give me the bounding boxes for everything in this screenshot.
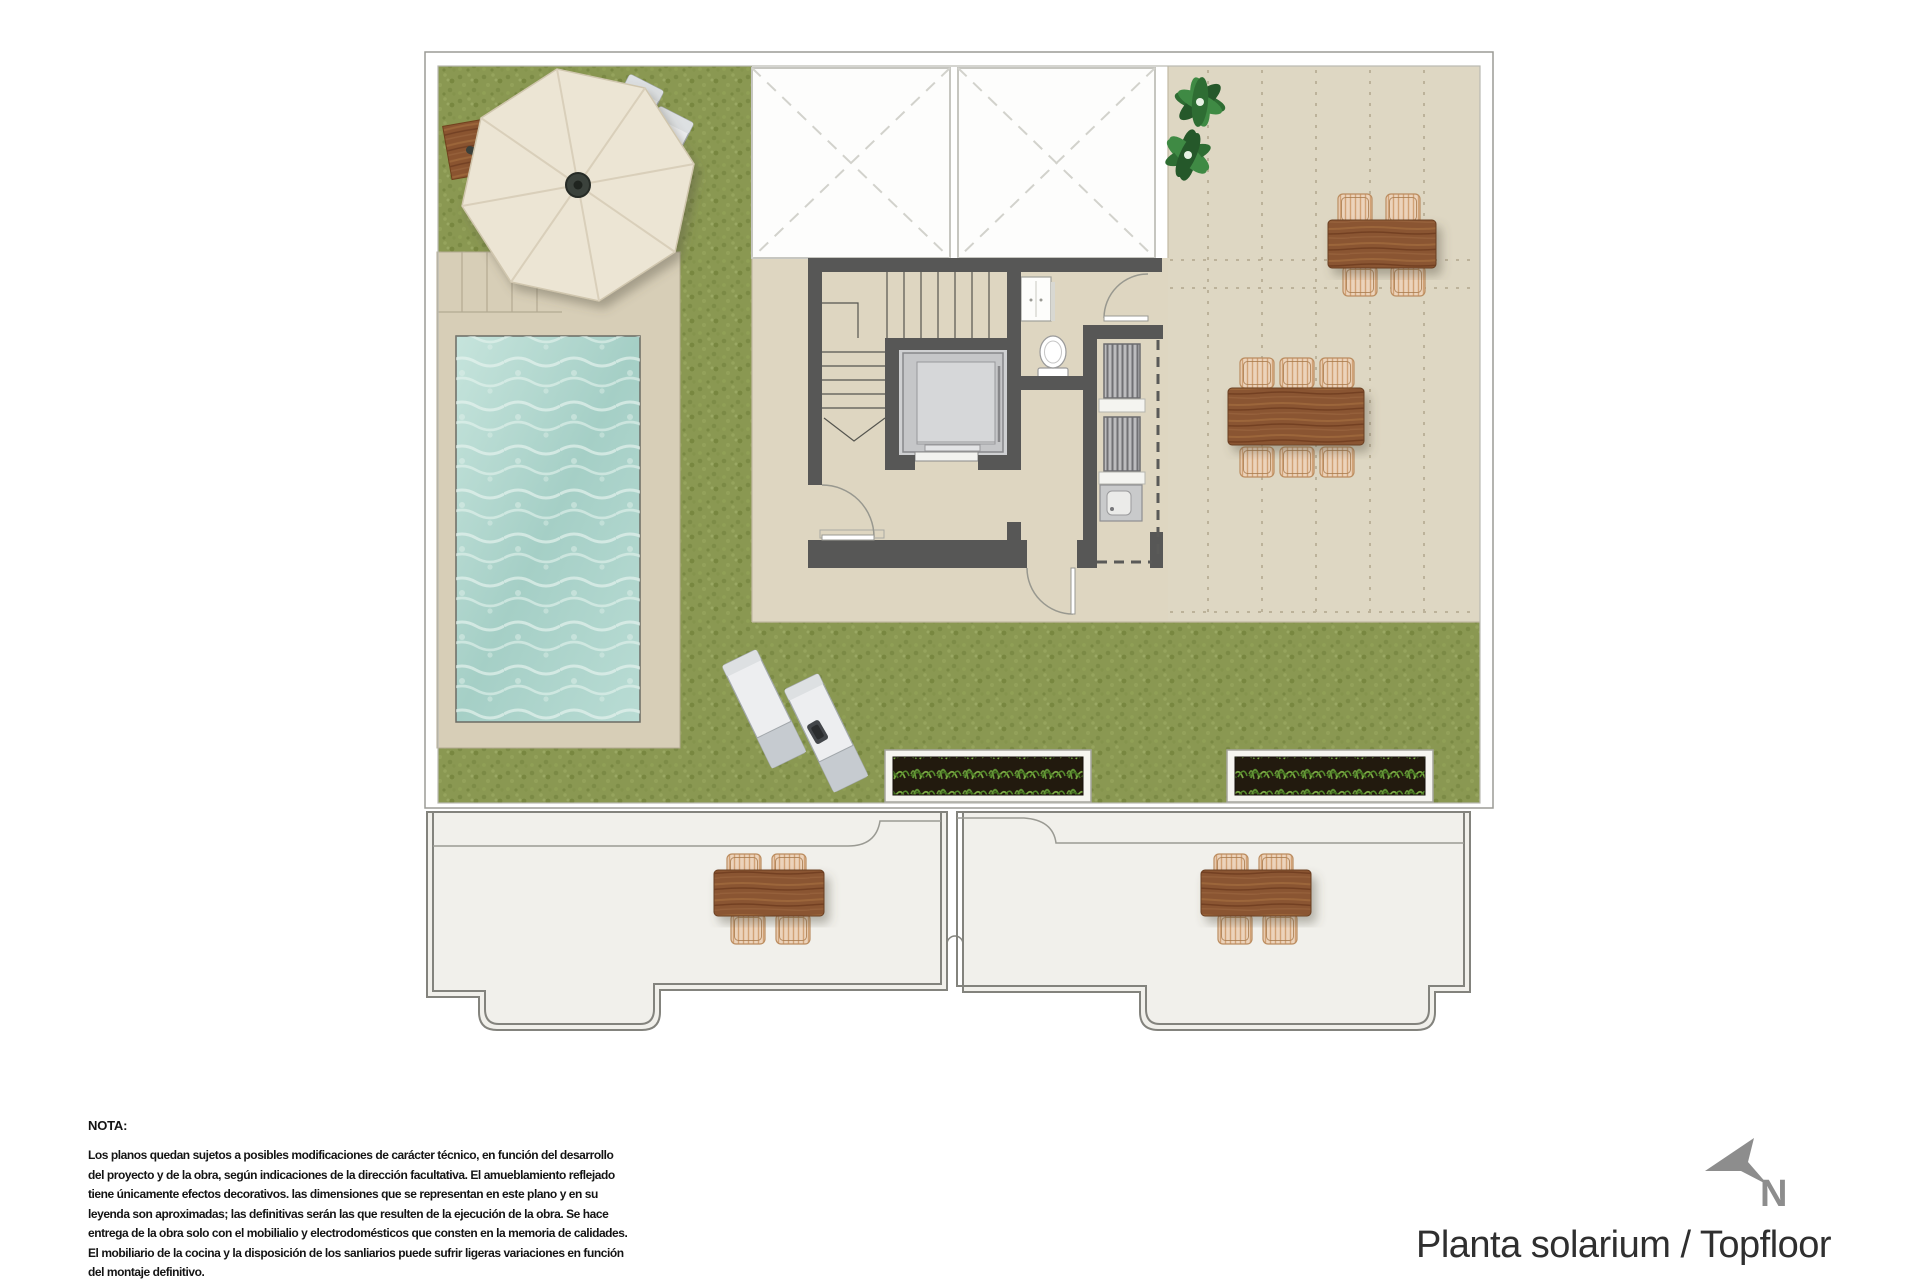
elevator [899,350,1007,461]
plan-title: Planta solarium / Topfloor [1416,1224,1886,1267]
door-leaf [822,535,874,540]
terrace-table-6 [1228,358,1364,477]
compass: N [1705,1138,1787,1215]
note-line: El mobiliario de la cocina y la disposic… [88,1244,558,1264]
pool-zone [437,252,680,748]
note-line: Los planos quedan sujetos a posibles mod… [88,1146,558,1166]
planter-right [1227,750,1433,802]
note-line: leyenda son aproximadas; las definitivas… [88,1205,558,1225]
wicker-chair [1240,447,1274,477]
wood-table [714,870,824,916]
roof-terrace [1168,66,1480,622]
water-heater [1021,277,1055,321]
wicker-chair [1280,447,1314,477]
wicker-chair [731,914,765,944]
lower-floor-right-unit [957,812,1470,1030]
wood-table [1328,220,1436,268]
note-line: del proyecto y de la obra, según indicac… [88,1166,558,1186]
wicker-chair [1320,358,1354,388]
floor-plan: N [0,0,1920,1280]
note-line: entrega de la obra solo con el mobiliali… [88,1224,558,1244]
door-leaf [1104,316,1148,321]
utility-sink [1100,485,1142,521]
wicker-chair [1218,914,1252,944]
parasol-hub-center [574,181,583,190]
shelf [1099,472,1145,484]
shelf [1099,399,1145,412]
wicker-chair [1391,266,1425,296]
wood-table [1228,388,1364,445]
wicker-chair [1263,914,1297,944]
utility-closet [1099,344,1145,521]
toilet [1038,336,1068,382]
north-arrow-icon [1705,1138,1768,1185]
note-heading: NOTA: [88,1118,558,1133]
note-line: tiene únicamente efectos decorativos. la… [88,1185,558,1205]
wood-table [1201,870,1311,916]
door-leaf [1071,568,1075,614]
wicker-chair [1280,358,1314,388]
north-label: N [1760,1173,1787,1215]
divider-notch [947,936,963,944]
wicker-chair [1240,358,1274,388]
wicker-chair [1320,447,1354,477]
wicker-chair [1343,266,1377,296]
hvac-unit [1104,417,1140,471]
elevator-door [915,452,978,461]
skylights [752,68,1155,258]
planter-left [885,750,1091,802]
swimming-pool [456,336,640,722]
solarium-level [425,52,1493,808]
note: NOTA: Los planos quedan sujetos a posibl… [88,1118,558,1283]
lower-level [427,812,1470,1030]
hvac-unit [1104,344,1140,398]
lower-floor-left-unit [427,812,947,1030]
wicker-chair [776,914,810,944]
